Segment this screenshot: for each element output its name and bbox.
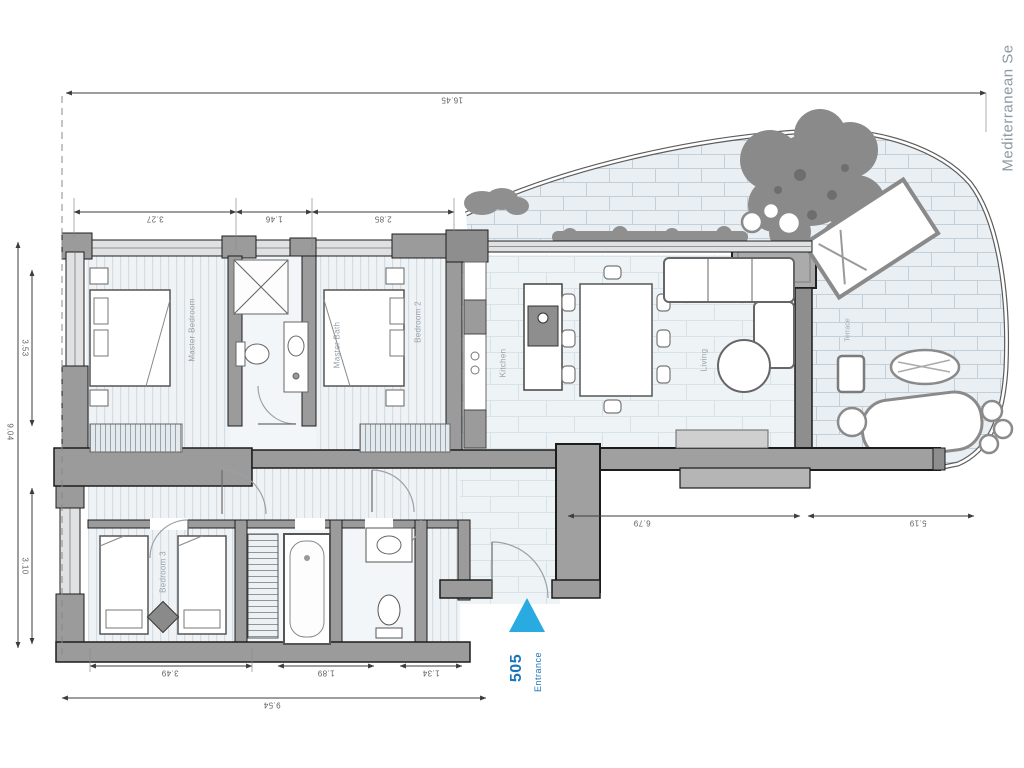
floor-plan-drawing xyxy=(0,0,1024,768)
bedroom2-wardrobe xyxy=(360,424,450,452)
floor-plan-page: 16.45 3.27 1.46 2.85 9.04 3.53 3.10 3.49… xyxy=(0,0,1024,768)
toilet-master xyxy=(236,342,269,366)
kitchen-counter xyxy=(464,262,486,448)
terrace-oval-table xyxy=(891,350,959,384)
bathtub xyxy=(284,534,330,644)
terrace-side-table xyxy=(838,356,864,392)
coffee-table xyxy=(718,340,770,392)
shower xyxy=(234,260,288,314)
bath2-sink xyxy=(366,528,412,562)
tv-console xyxy=(676,430,768,448)
bath2-toilet xyxy=(376,595,402,638)
kitchen-island xyxy=(524,284,562,390)
dining-table xyxy=(580,284,652,396)
twin-bed-2 xyxy=(178,536,226,634)
twin-bed-1 xyxy=(100,536,148,634)
vanity-master xyxy=(284,322,308,392)
bath-shelving xyxy=(248,534,278,638)
master-wardrobe xyxy=(90,424,182,452)
